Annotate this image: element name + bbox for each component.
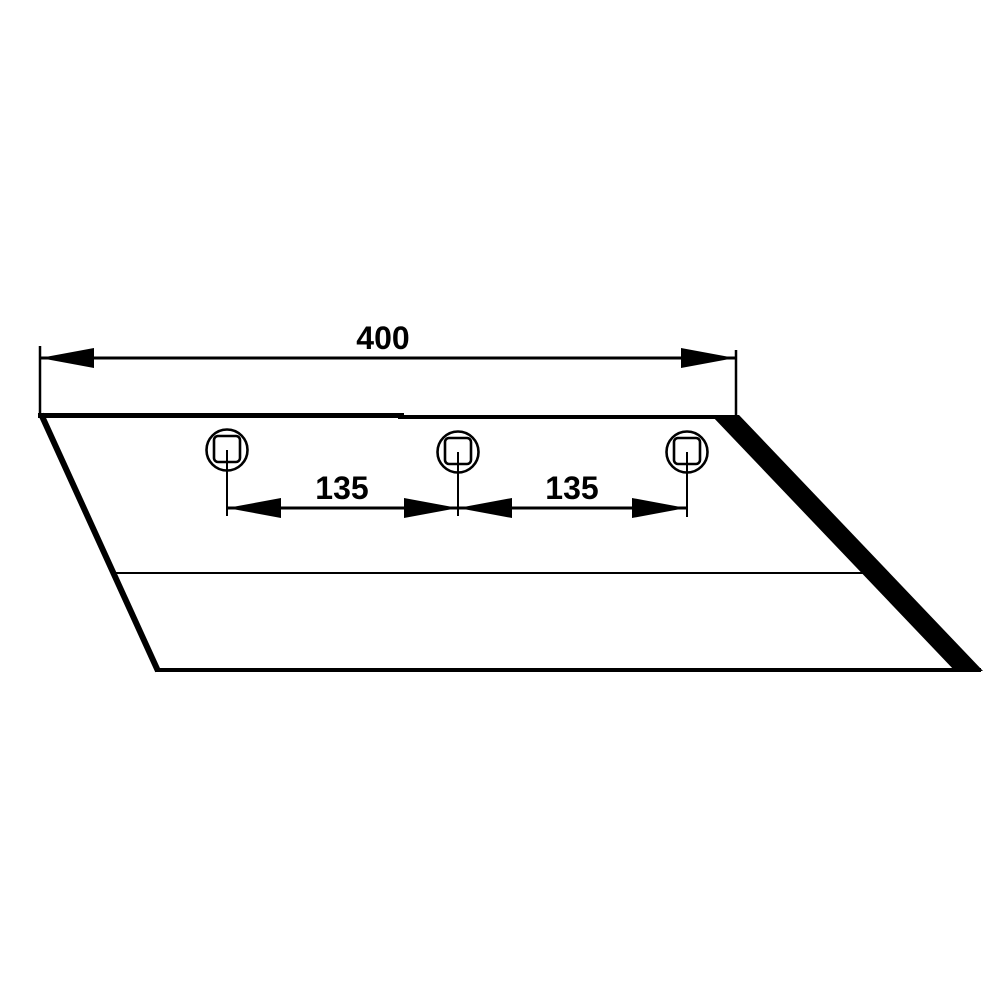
dim-135-right-label: 135	[541, 472, 602, 504]
drawing-canvas: 400 135 135	[0, 0, 1000, 1000]
blade-drawing	[0, 0, 1000, 1000]
bolt-hole-1	[207, 430, 248, 517]
dim-135-left-label: 135	[311, 472, 372, 504]
bolt-hole-2	[438, 432, 479, 517]
blade-left-edge	[41, 414, 158, 671]
dim-135-left-arrow-right-icon	[404, 498, 458, 518]
bolt-hole-3	[667, 432, 708, 518]
dim-400-arrow-right-icon	[681, 348, 735, 368]
dim-135-right-arrow-left-icon	[458, 498, 512, 518]
dim-400-label: 400	[352, 322, 413, 354]
dimension-overall-width	[40, 346, 736, 417]
dim-135-left-arrow-left-icon	[227, 498, 281, 518]
dim-400-arrow-left-icon	[40, 348, 94, 368]
dim-135-right-arrow-right-icon	[632, 498, 686, 518]
blade-hardened-edge	[711, 415, 983, 671]
dimension-hole-spacing	[227, 498, 686, 518]
blade-outline	[38, 414, 983, 671]
